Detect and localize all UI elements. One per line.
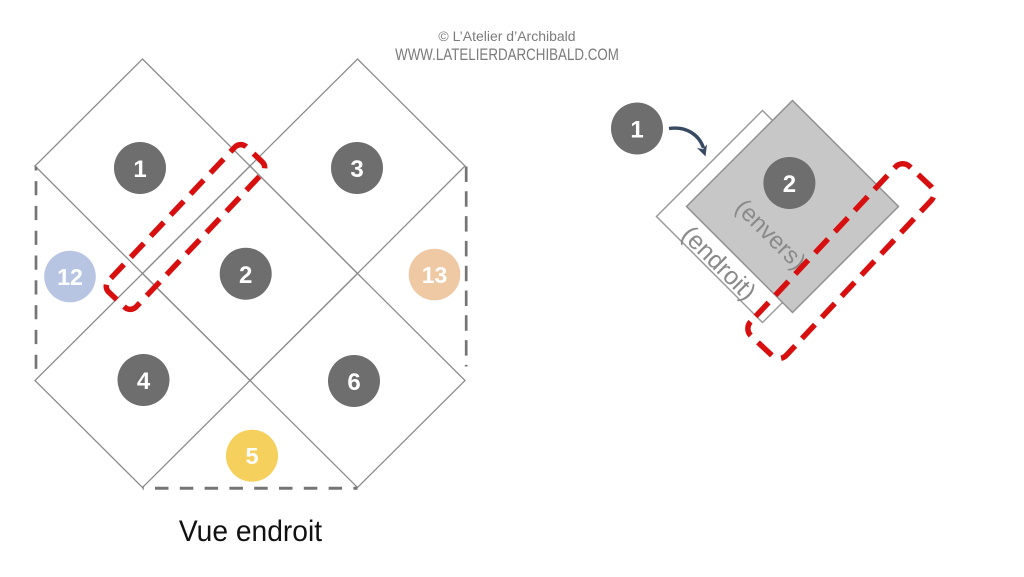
- svg-text:2: 2: [783, 171, 796, 198]
- svg-text:Vue endroit: Vue endroit: [179, 515, 322, 548]
- svg-text:1: 1: [133, 156, 146, 183]
- svg-text:WWW.LATELIERDARCHIBALD.COM: WWW.LATELIERDARCHIBALD.COM: [395, 46, 619, 65]
- svg-text:© L’Atelier d’Archibald: © L’Atelier d’Archibald: [438, 28, 575, 44]
- svg-text:1: 1: [630, 117, 643, 144]
- svg-text:12: 12: [57, 264, 83, 290]
- svg-text:3: 3: [350, 156, 363, 183]
- svg-text:5: 5: [245, 443, 258, 469]
- svg-text:4: 4: [137, 368, 151, 395]
- svg-text:13: 13: [422, 262, 448, 288]
- svg-text:6: 6: [347, 369, 360, 396]
- svg-text:2: 2: [239, 262, 252, 289]
